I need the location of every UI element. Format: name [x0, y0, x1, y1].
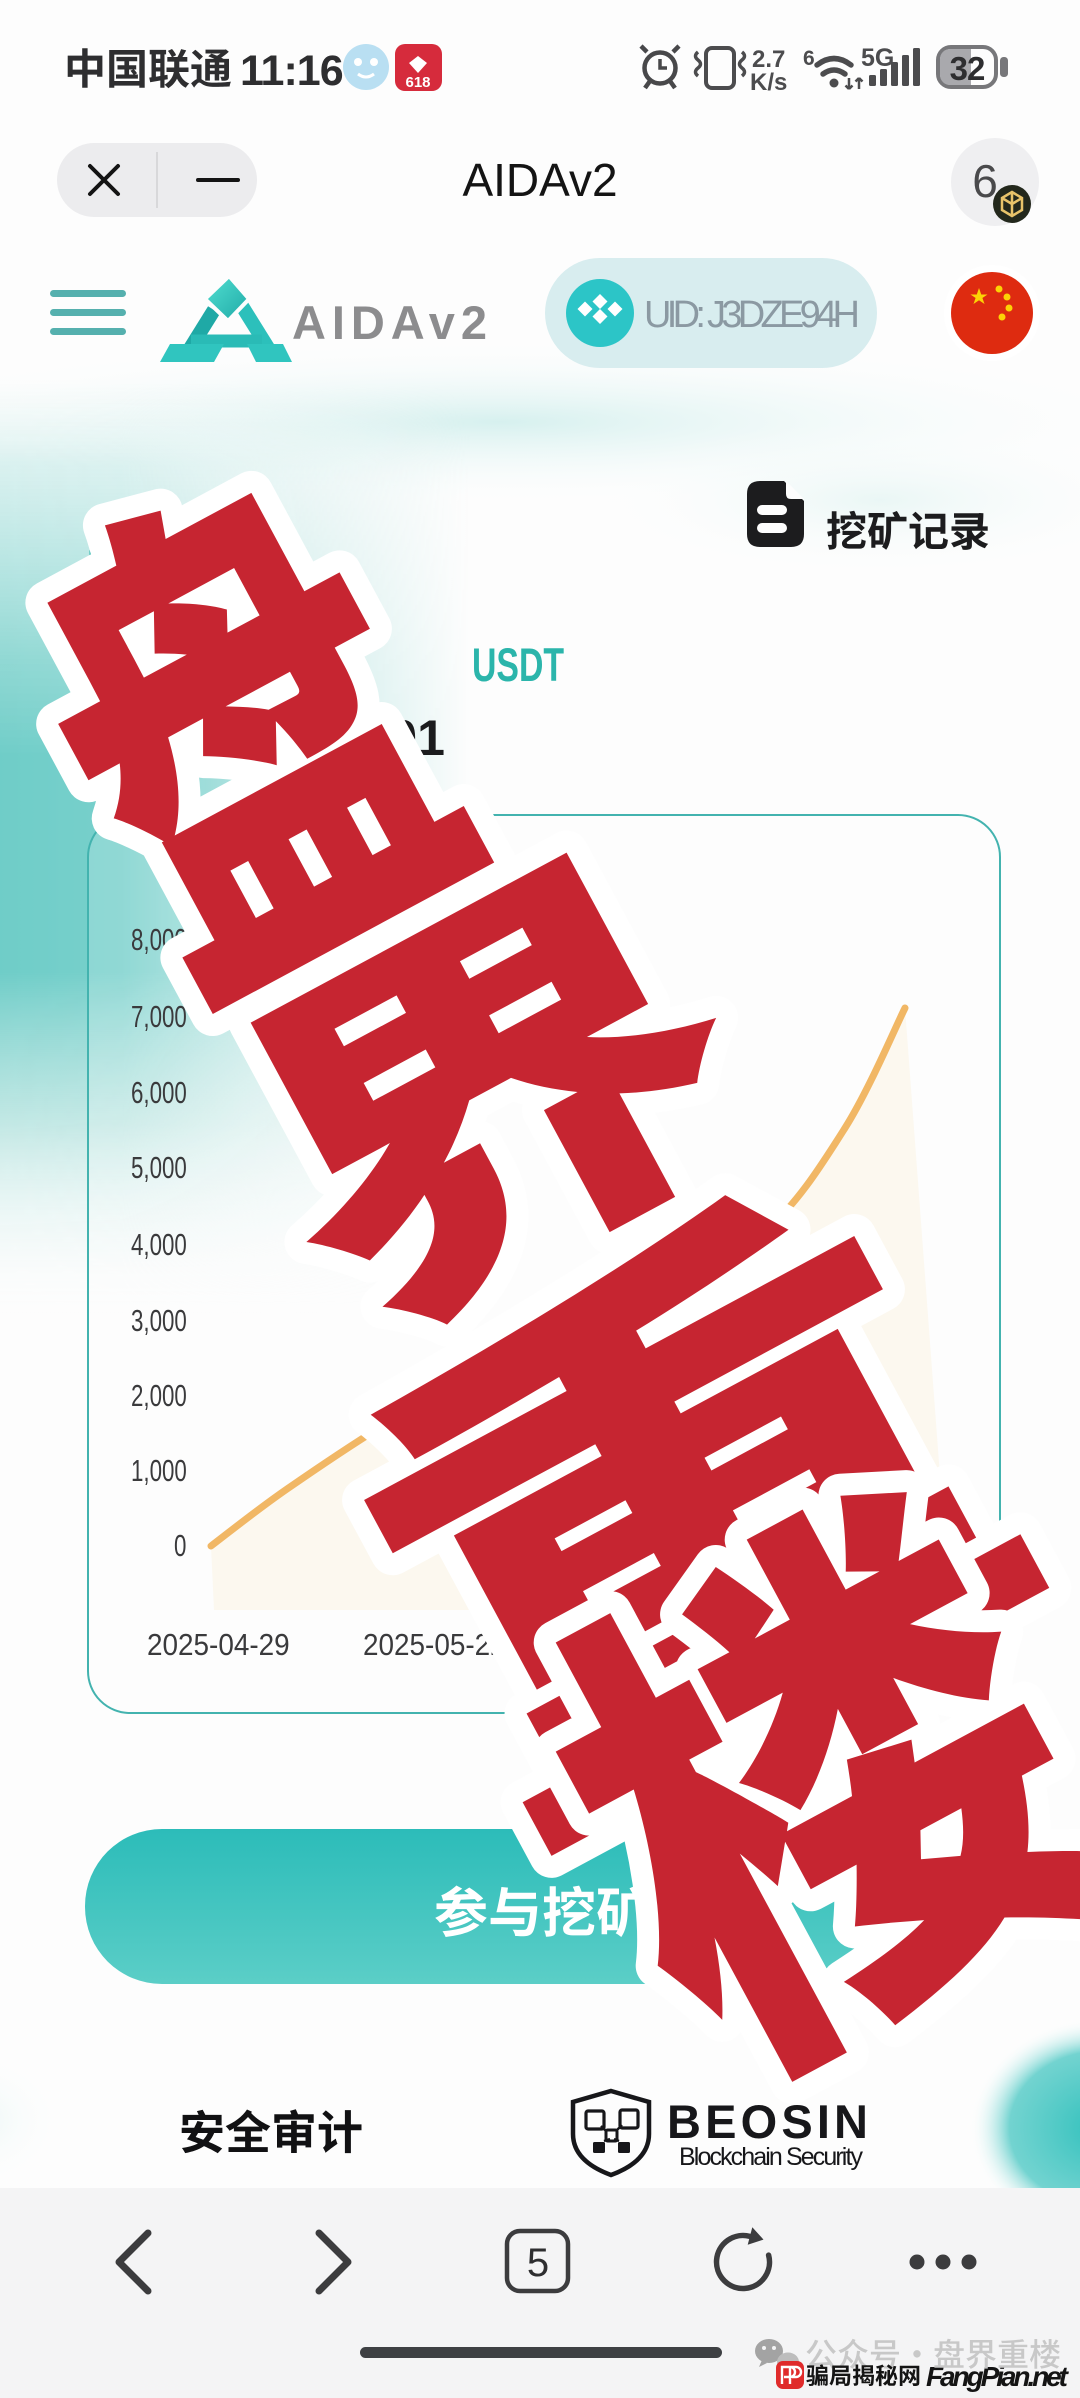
svg-text:UID: J3DZE94H: UID: J3DZE94H: [644, 294, 860, 336]
svg-text:618: 618: [405, 74, 430, 91]
svg-text:Blockchain Security: Blockchain Security: [679, 2143, 864, 2171]
svg-text:11:16: 11:16: [240, 47, 343, 95]
svg-text:5,000: 5,000: [131, 1150, 187, 1184]
svg-text:7,000: 7,000: [131, 999, 187, 1033]
svg-text:K/s: K/s: [750, 69, 787, 96]
svg-text:AIDAv2: AIDAv2: [462, 154, 617, 206]
svg-text:BEOSIN: BEOSIN: [667, 2095, 875, 2148]
svg-text:0: 0: [174, 1528, 186, 1562]
svg-text:5G: 5G: [861, 44, 894, 72]
svg-text:1,000: 1,000: [131, 1453, 187, 1487]
svg-text:6,000: 6,000: [131, 1075, 187, 1109]
svg-text:4,000: 4,000: [131, 1227, 187, 1261]
svg-text:5: 5: [527, 2241, 549, 2285]
svg-text:32: 32: [950, 50, 985, 87]
svg-text:USDT: USDT: [472, 639, 564, 692]
svg-text:2,000: 2,000: [131, 1378, 187, 1412]
svg-text:2025-04-29: 2025-04-29: [147, 1628, 290, 1663]
svg-text:3,000: 3,000: [131, 1303, 187, 1337]
svg-text:6: 6: [803, 47, 815, 70]
